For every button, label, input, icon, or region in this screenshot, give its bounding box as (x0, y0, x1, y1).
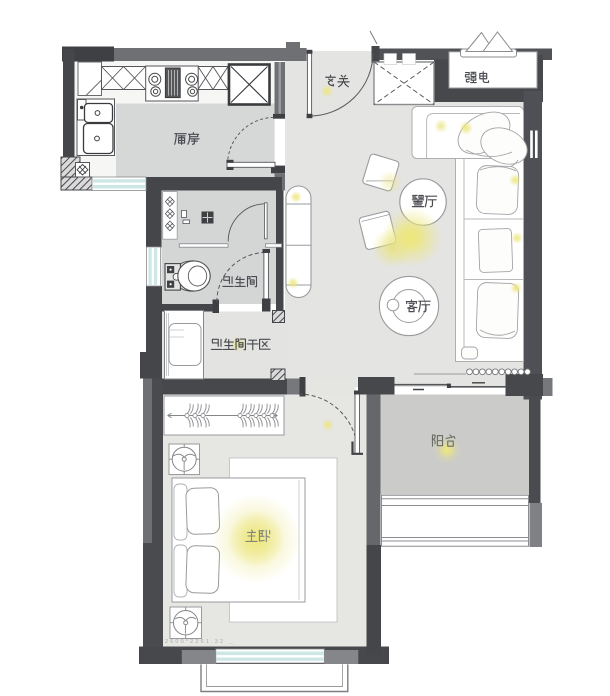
svg-text:~..: ~.. (229, 641, 234, 646)
